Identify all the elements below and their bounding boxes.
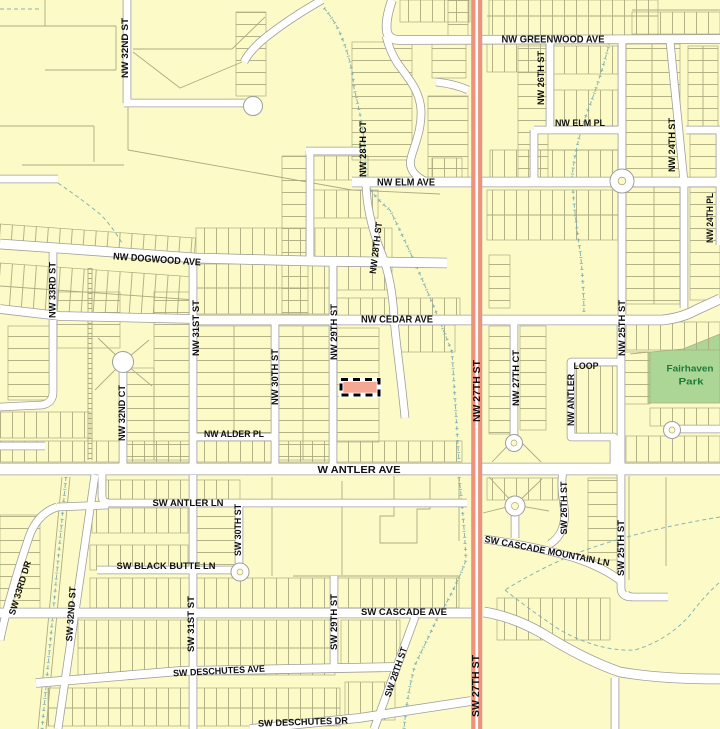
svg-text:NW 32ND CT: NW 32ND CT (117, 385, 127, 441)
svg-text:NW 27TH CT: NW 27TH CT (511, 350, 521, 406)
svg-text:SW CASCADE AVE: SW CASCADE AVE (361, 607, 447, 617)
svg-text:SW 31ST ST: SW 31ST ST (186, 596, 196, 652)
svg-text:SW 29TH ST: SW 29TH ST (329, 594, 339, 650)
svg-text:NW 31ST ST: NW 31ST ST (191, 300, 201, 356)
svg-text:SW 27TH ST: SW 27TH ST (471, 655, 482, 717)
svg-text:Fairhaven: Fairhaven (667, 364, 714, 375)
svg-text:NW ELM AVE: NW ELM AVE (377, 178, 435, 189)
svg-text:NW 30TH ST: NW 30TH ST (270, 349, 280, 405)
svg-text:NW 32ND ST: NW 32ND ST (120, 18, 130, 78)
svg-text:NW 24TH ST: NW 24TH ST (667, 118, 677, 172)
svg-text:NW 25TH ST: NW 25TH ST (617, 300, 627, 356)
svg-text:NW 27TH ST: NW 27TH ST (472, 360, 483, 422)
svg-text:NW CEDAR AVE: NW CEDAR AVE (361, 315, 433, 326)
svg-text:NW 26TH ST: NW 26TH ST (536, 51, 546, 105)
svg-text:NW 29TH ST: NW 29TH ST (329, 304, 339, 360)
svg-text:LOOP: LOOP (574, 361, 599, 371)
svg-text:NW ALDER PL: NW ALDER PL (204, 429, 264, 439)
svg-text:W ANTLER AVE: W ANTLER AVE (318, 464, 401, 476)
svg-text:NW 24TH PL: NW 24TH PL (705, 193, 715, 243)
svg-text:SW 30TH ST: SW 30TH ST (233, 504, 243, 556)
svg-text:NW 28TH CT: NW 28TH CT (358, 121, 368, 177)
svg-text:SW 25TH ST: SW 25TH ST (616, 520, 626, 576)
svg-text:NW ANTLER: NW ANTLER (566, 374, 576, 426)
svg-text:SW 26TH ST: SW 26TH ST (559, 481, 569, 534)
svg-text:NW GREENWOOD AVE: NW GREENWOOD AVE (502, 35, 605, 46)
svg-text:NW 33RD ST: NW 33RD ST (48, 262, 58, 318)
svg-text:SW BLACK BUTTE LN: SW BLACK BUTTE LN (117, 561, 216, 571)
svg-text:NW ELM PL: NW ELM PL (555, 118, 605, 128)
svg-text:Park: Park (679, 377, 705, 388)
svg-text:SW ANTLER LN: SW ANTLER LN (153, 498, 224, 508)
